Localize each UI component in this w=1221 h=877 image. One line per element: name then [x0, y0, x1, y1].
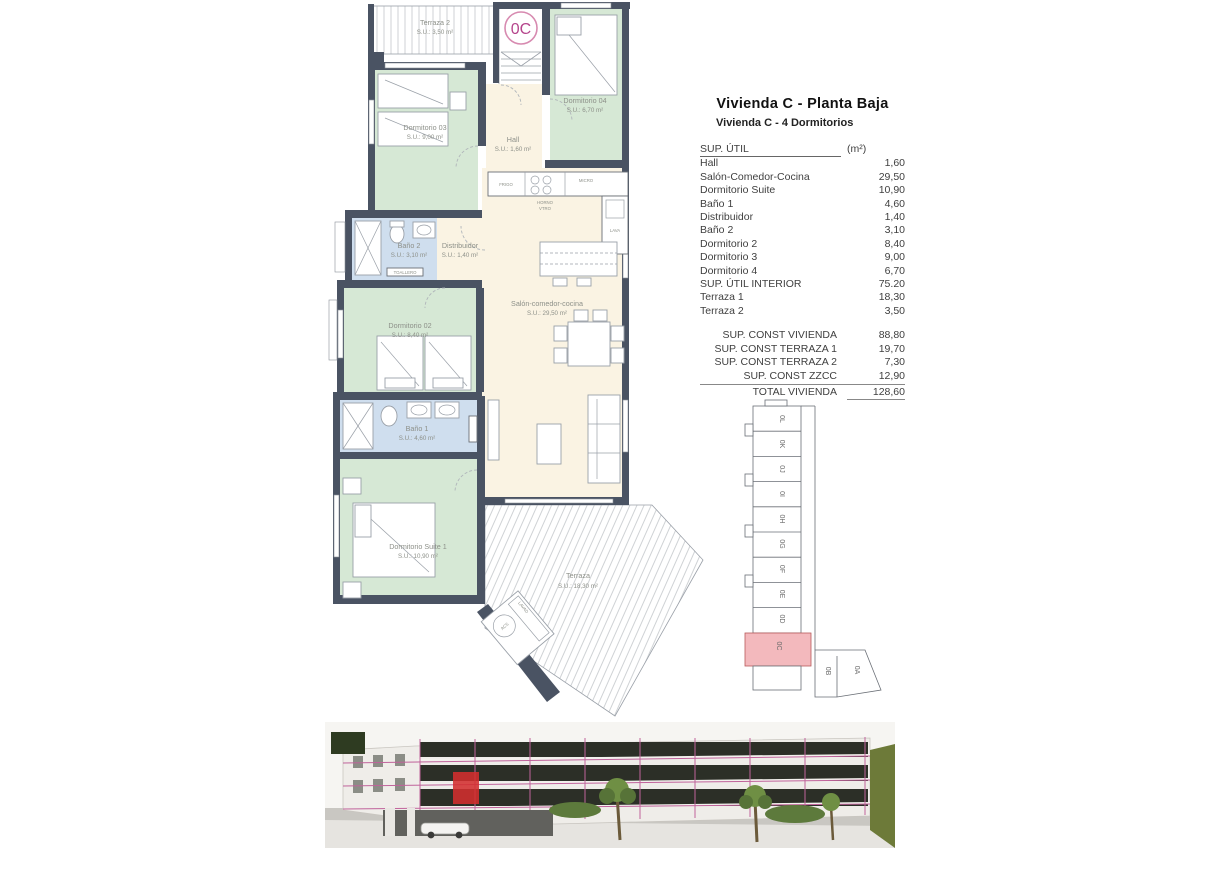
exterior-ledge: [329, 300, 337, 360]
page-title: Vivienda C - Planta Baja: [700, 96, 905, 112]
svg-text:S.U.: 18,30 m²: S.U.: 18,30 m²: [558, 583, 598, 590]
room-label: Dormitorio 02: [388, 321, 431, 330]
svg-text:S.U.: 8,40 m²: S.U.: 8,40 m²: [392, 332, 428, 339]
area-row: Salón-Comedor-Cocina29,50: [700, 171, 905, 184]
right-hedge: [870, 744, 895, 848]
area-row: Dormitorio Suite10,90: [700, 184, 905, 197]
window: [623, 400, 628, 452]
window: [338, 310, 343, 358]
pillow: [433, 378, 463, 388]
chair: [554, 326, 567, 341]
key-unit-label: 0B: [824, 667, 831, 676]
room-label: Baño 1: [406, 424, 429, 433]
svg-text:S.U.: 1,60 m²: S.U.: 1,60 m²: [495, 146, 531, 153]
washbasin: [413, 222, 435, 238]
area-row: Dormitorio 28,40: [700, 238, 905, 251]
stool: [553, 278, 567, 286]
key-unit-label: 0E: [778, 590, 785, 599]
area-row: Baño 23,10: [700, 224, 905, 237]
bed: [378, 74, 448, 108]
nightstand: [343, 478, 361, 494]
towel-rail-label: TOALLERO: [394, 270, 418, 275]
summary-row: SUP. CONST TERRAZA 119,70: [700, 343, 905, 356]
pillow: [385, 378, 415, 388]
room-label: Terraza: [566, 571, 590, 580]
window: [334, 495, 339, 557]
key-unit-label: 0F: [778, 565, 785, 573]
pillow: [557, 17, 581, 35]
key-unit-label: 0K: [778, 440, 785, 449]
microwave-label: MICRO: [579, 178, 594, 183]
area-row: Terraza 118,30: [700, 291, 905, 304]
room-label: Terraza 2: [420, 18, 450, 27]
coffee-table: [537, 424, 561, 464]
tv-unit: [488, 400, 499, 460]
svg-text:S.U.: 9,00 m²: S.U.: 9,00 m²: [407, 134, 443, 141]
svg-text:S.U.: 29,50 m²: S.U.: 29,50 m²: [527, 310, 567, 317]
nightstand: [343, 582, 361, 598]
unit-badge: 0C: [505, 12, 537, 44]
toilet: [381, 406, 397, 426]
key-unit-label: 0G: [778, 539, 785, 548]
svg-text:S.U.: 1,40 m²: S.U.: 1,40 m²: [442, 252, 478, 259]
area-row: Hall1,60: [700, 157, 905, 170]
room-label: Salón-comedor-cocina: [511, 299, 583, 308]
highlighted-unit-marker: [453, 772, 479, 804]
kitchen-island: [540, 242, 617, 276]
chair: [554, 348, 567, 363]
balcony-glazing: [420, 742, 868, 806]
dishwasher-label: LAVA: [610, 228, 620, 233]
stool: [577, 278, 591, 286]
nightstand: [450, 92, 466, 110]
plan-sheet: 0C: [0, 0, 1221, 877]
pillow: [355, 505, 371, 537]
room-label: Baño 2: [398, 241, 421, 250]
key-unit-label: 0L: [778, 415, 785, 423]
chair: [574, 310, 588, 321]
window: [561, 3, 611, 8]
hob-label: VTRO: [539, 206, 552, 211]
building-elevation-render: [325, 722, 895, 848]
summary-row: SUP. CONST VIVIENDA88,80: [700, 329, 905, 342]
summary-row: SUP. CONST ZZCC12,90: [700, 370, 905, 383]
key-unit-label: 0A: [853, 666, 860, 675]
exterior-ledge: [335, 222, 345, 272]
room-label: Hall: [507, 135, 520, 144]
area-row: Terraza 23,50: [700, 305, 905, 318]
unit-badge-label: 0C: [511, 21, 531, 38]
key-unit-label: 0H: [778, 515, 785, 524]
key-unit-label: 0D: [778, 615, 785, 624]
page-subtitle: Vivienda C - 4 Dormitorios: [716, 117, 905, 129]
key-unit-label: 0I: [778, 491, 785, 497]
area-row: Distribuidor1,40: [700, 211, 905, 224]
sofa: [588, 395, 620, 483]
room-label: Distribuidor: [442, 241, 479, 250]
key-units-strip: [753, 406, 801, 633]
room-label: Dormitorio 03: [403, 123, 446, 132]
area-row: Dormitorio 39,00: [700, 251, 905, 264]
oven-label: HORNO: [537, 200, 554, 205]
svg-text:S.U.: 3,10 m²: S.U.: 3,10 m²: [391, 252, 427, 259]
svg-text:S.U.: 4,60 m²: S.U.: 4,60 m²: [399, 435, 435, 442]
toilet-tank: [390, 221, 404, 227]
key-unit-label: 0C: [775, 642, 782, 651]
area-table-header: SUP. ÚTIL (m²): [700, 143, 905, 157]
key-plan: 0L 0K 0J 0I 0H 0G 0F 0E 0D 0C 0B 0A: [725, 398, 890, 698]
key-unit-label: 0J: [778, 465, 785, 472]
floor-plan: 0C: [325, 0, 715, 730]
washbasin: [407, 402, 431, 418]
window: [369, 100, 374, 144]
room-label: Dormitorio 04: [563, 96, 606, 105]
summary-row: SUP. CONST TERRAZA 27,30: [700, 356, 905, 369]
utility-box: [469, 416, 477, 442]
svg-text:S.U.: 6,70 m²: S.U.: 6,70 m²: [567, 107, 603, 114]
terrace-slider-window: [505, 499, 613, 503]
svg-text:S.U.: 3,50 m²: S.U.: 3,50 m²: [417, 29, 453, 36]
chair: [611, 326, 624, 341]
area-row: Baño 14,60: [700, 198, 905, 211]
room-label: Dormitorio Suite 1: [389, 542, 447, 551]
room-hall: [486, 84, 542, 172]
chair: [611, 348, 624, 363]
info-panel: Vivienda C - Planta Baja Vivienda C - 4 …: [700, 96, 905, 400]
chair: [593, 310, 607, 321]
dining-table: [568, 322, 610, 366]
area-row: Dormitorio 46,70: [700, 265, 905, 278]
area-table: SUP. ÚTIL (m²) Hall1,60 Salón-Comedor-Co…: [700, 143, 905, 400]
area-row: SUP. ÚTIL INTERIOR75.20: [700, 278, 905, 291]
construction-summary: SUP. CONST VIVIENDA88,80 SUP. CONST TERR…: [700, 329, 905, 400]
window: [385, 63, 465, 68]
washbasin: [435, 402, 459, 418]
fridge-label: FRIGO: [499, 182, 513, 187]
svg-text:S.U.: 10,90 m²: S.U.: 10,90 m²: [398, 553, 438, 560]
